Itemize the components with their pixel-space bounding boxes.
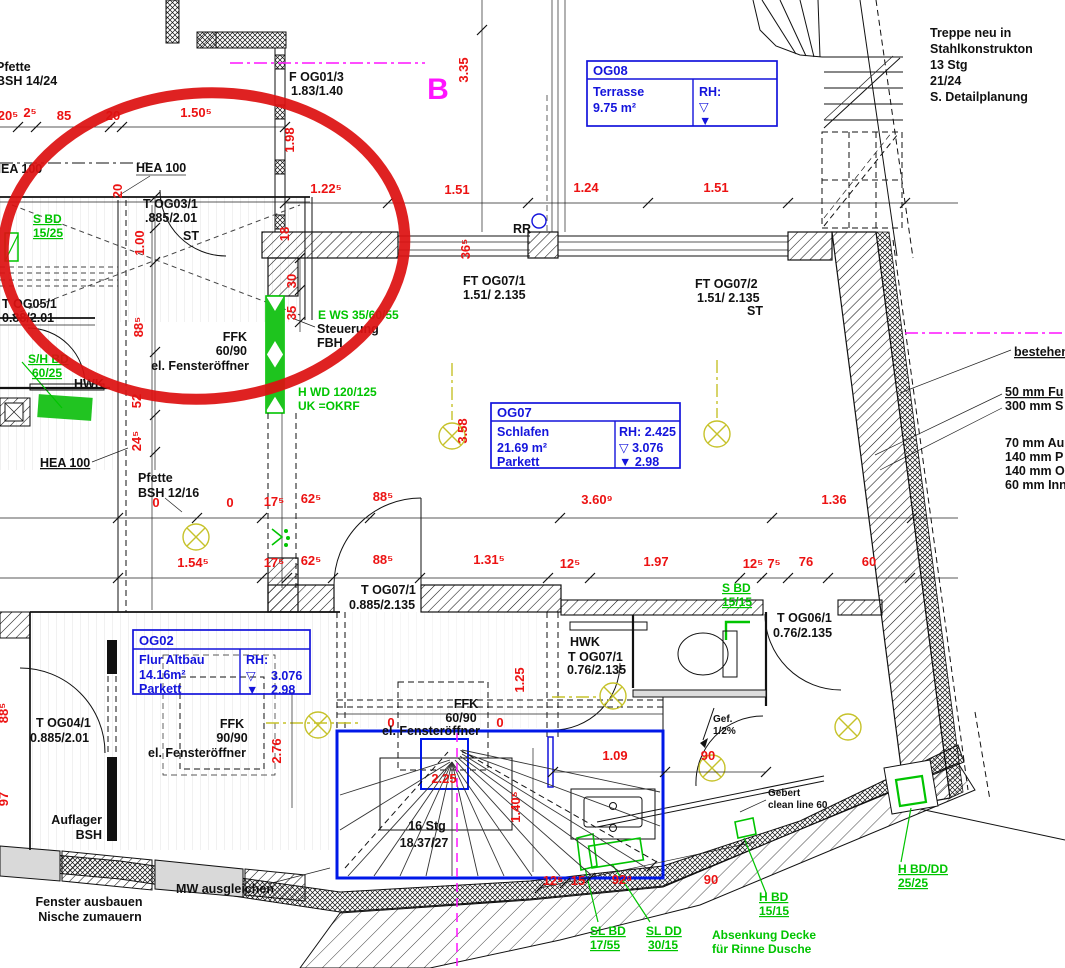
plan-label: 1.24 [573,180,599,195]
plan-label: bestehend [1014,345,1065,359]
plan-label: 15 [571,873,585,888]
plan-label: 24⁵ [129,431,144,452]
plan-label: 60/25 [32,366,62,380]
plan-label: 3.35 [456,57,471,82]
plan-label: FT OG07/1 [463,274,526,288]
plan-label: 1.54⁵ [177,555,208,570]
room-area: 21.69 m² [497,441,547,455]
plan-label: T OG06/1 [777,611,832,625]
plan-label: 0.76/2.135 [773,626,832,640]
plan-label: HEA 100 [136,161,186,175]
plan-label: 85 [57,108,71,123]
plan-label: 50 mm Fu [1005,385,1063,399]
plan-label: 15/25 [33,226,63,240]
plan-label: 140 mm O [1005,464,1065,478]
plan-label: 1.51 [444,182,469,197]
plan-label: 60/90 [216,344,247,358]
room-id: OG08 [593,63,628,78]
plan-label: 88⁵ [373,489,394,504]
plan-label: S BD [33,212,62,226]
plan-label: 12⁵ [743,556,764,571]
room-name: Flur Altbau [139,653,205,667]
plan-label: 30/15 [648,938,678,952]
switch-icon [272,529,282,545]
room-floor: Parkett [139,682,182,696]
rainwater-pipe-icon [532,214,546,228]
plan-label: H BD [759,890,789,904]
plan-label: el. Fensteröffner [382,724,480,738]
plan-label: T OG07/1 [361,583,416,597]
plan-label: 90/90 [216,731,247,745]
plan-label: 0.76/2.135 [567,663,626,677]
top-wall-band [262,232,832,260]
plan-label: 97 [0,792,11,806]
plan-label: el. Fensteröffner [151,359,249,373]
plan-label: 12⁵ [560,556,581,571]
plan-label: FT OG07/2 [695,277,758,291]
room-box-og07: OG07 Schlafen 21.69 m² Parkett RH: 2.425… [491,403,680,469]
plan-label: 7⁵ [767,556,780,571]
plan-label: 1.51/ 2.135 [463,288,526,302]
level-open: ▽ 3.076 [619,441,663,455]
plan-label: 18.37/27 [400,836,449,850]
room-box-og08: OG08 Terrasse 9.75 m² RH: ▽ ▼ [587,61,777,128]
plan-label: 1.51 [703,180,728,195]
room-id: OG07 [497,405,532,420]
plan-label: FFK [220,717,244,731]
plan-label: Nische zumauern [38,910,142,924]
terrace-lines [482,0,565,232]
plan-label: Auflager [51,813,102,827]
plan-label: 1.51/ 2.135 [697,291,760,305]
plan-label: 3.58 [455,418,470,443]
plan-label: MW ausgleichen [176,882,274,896]
plan-label: 13 Stg [930,58,968,72]
plan-label: 0.885/2.01 [30,731,89,745]
plan-label: .885/2.01 [145,211,197,225]
plan-label: 30 [284,274,299,288]
plan-label: HEA 100 [40,456,90,470]
plan-label: T OG03/1 [143,197,198,211]
plan-label: 17⁵ [264,494,285,509]
plan-label: F OG01/3 [289,70,344,84]
plan-label: clean line 60 [768,800,828,811]
plan-label: 90 [704,872,718,887]
plan-label: 92⁸ [612,872,633,887]
plan-label: 0 [496,715,503,730]
level-filled-icon: ▼ [246,683,258,697]
plan-label: 15/15 [759,904,789,918]
plan-label: ST [183,229,199,243]
plan-label: H WD 120/125 [298,385,377,399]
plan-label: 20 [110,184,125,198]
plan-label: 1.31⁵ [473,552,504,567]
plan-label: 60 [862,554,876,569]
plan-label: T OG07/1 [568,650,623,664]
plan-label: 0.885/2.135 [349,598,415,612]
level-open-icon: ▽ [246,669,256,683]
plan-label: 0 [226,495,233,510]
plan-label: 62⁵ [301,553,322,568]
level-filled: ▼ 2.98 [619,455,659,469]
plan-label: RR [513,222,531,236]
washbasin [584,797,642,827]
room-name: Schlafen [497,425,549,439]
room-id: OG02 [139,633,174,648]
plan-label: 2⁵ [23,105,36,120]
plan-label: 15/15 [722,595,752,609]
plan-label: 1.97 [643,554,668,569]
plan-label: 1.09 [602,748,627,763]
plan-label: 76 [799,554,813,569]
plan-label: 17/55 [590,938,620,952]
plan-label: 1.22⁵ [310,181,341,196]
plan-label: 300 mm S [1005,399,1063,413]
plan-label: 12⁵ [543,873,564,888]
plan-label: 1.40⁵ [508,791,523,822]
plan-label: Fenster ausbauen [36,895,143,909]
plan-label: FBH [317,336,343,350]
plan-label: 60/90 [445,711,476,725]
plan-label: 36⁵ [458,239,473,260]
plan-label: BSH [76,828,102,842]
plan-label: Pfette [138,471,173,485]
plan-label: Pfette [0,60,31,74]
plan-label: FFK [223,330,247,344]
right-slanted-wall [832,0,968,814]
room-area: 14.16m² [139,668,186,682]
plan-label: 2.25 [431,771,456,786]
plan-label: 88⁵ [0,703,11,724]
plan-label: 20⁵ [0,108,18,123]
plan-label: S BD [722,581,751,595]
plan-label: 88⁵ [131,317,146,338]
plan-label: T OG04/1 [36,716,91,730]
plan-label: 1.36 [821,492,846,507]
plan-label: 140 mm P [1005,450,1063,464]
plan-label: S. Detailplanung [930,90,1028,104]
plan-label: 90 [701,748,715,763]
level-open-value: 3.076 [271,669,302,683]
plan-label: SL BD [590,924,626,938]
plan-label: 60 mm Inn [1005,478,1065,492]
level-open-icon: ▽ [699,100,709,114]
plan-label: Absenkung Decke [712,928,816,942]
plan-label: 2.76 [269,738,284,763]
plan-label: ST [747,304,763,318]
plan-label: SL DD [646,924,682,938]
plan-label: 16 Stg [408,819,446,833]
plan-label: Gebert [768,788,801,799]
level-filled-icon: ▼ [699,114,711,128]
plan-label: B [427,73,449,106]
plan-label: 17⁵ [264,555,285,570]
plan-label: 18 [277,227,292,241]
plan-label: 62⁵ [301,491,322,506]
plan-label: 1.25 [512,667,527,692]
plan-label: Stahlkonstrukton [930,42,1033,56]
plan-label: 35 [284,306,299,320]
room-height: RH: 2.425 [619,425,676,439]
plan-label: H BD/DD [898,862,948,876]
plan-label: 88⁵ [373,552,394,567]
plan-label: 3.60⁹ [581,492,612,507]
plan-label: 70 mm Au [1005,436,1064,450]
plan-label: 1.50⁵ [180,105,211,120]
room-floor: Parkett [497,455,540,469]
room-name: Terrasse [593,85,644,99]
shower-drain-marker [896,776,926,806]
masonry-fill-block [0,846,60,881]
plan-label: 25/25 [898,876,928,890]
room-height-label: RH: [246,653,268,667]
plan-label: 1.00 [132,230,147,255]
plan-label: BSH 12/16 [138,486,199,500]
plan-label: 1/2% [713,726,736,737]
plan-label: 21/24 [930,74,961,88]
plan-label: für Rinne Dusche [712,942,812,956]
toilet-bowl [678,633,728,675]
plan-label: 1.98 [282,127,297,152]
room-height-label: RH: [699,85,721,99]
level-filled-value: 2.98 [271,683,295,697]
plan-label: FFK [454,697,478,711]
plan-label: UK =OKRF [298,399,360,413]
room-area: 9.75 m² [593,101,636,115]
plan-label: Treppe neu in [930,26,1011,40]
sh-bd-fixture [37,394,92,421]
plan-label: Gef. [713,714,733,725]
plan-label: BSH 14/24 [0,74,57,88]
plan-label: 1.83/1.40 [291,84,343,98]
floor-plan-page: OG08 Terrasse 9.75 m² RH: ▽ ▼ OG07 Schla… [0,0,1065,968]
plan-label: el. Fensteröffner [148,746,246,760]
floor-plan-svg: OG08 Terrasse 9.75 m² RH: ▽ ▼ OG07 Schla… [0,0,1065,968]
plan-label: HWK [570,635,600,649]
